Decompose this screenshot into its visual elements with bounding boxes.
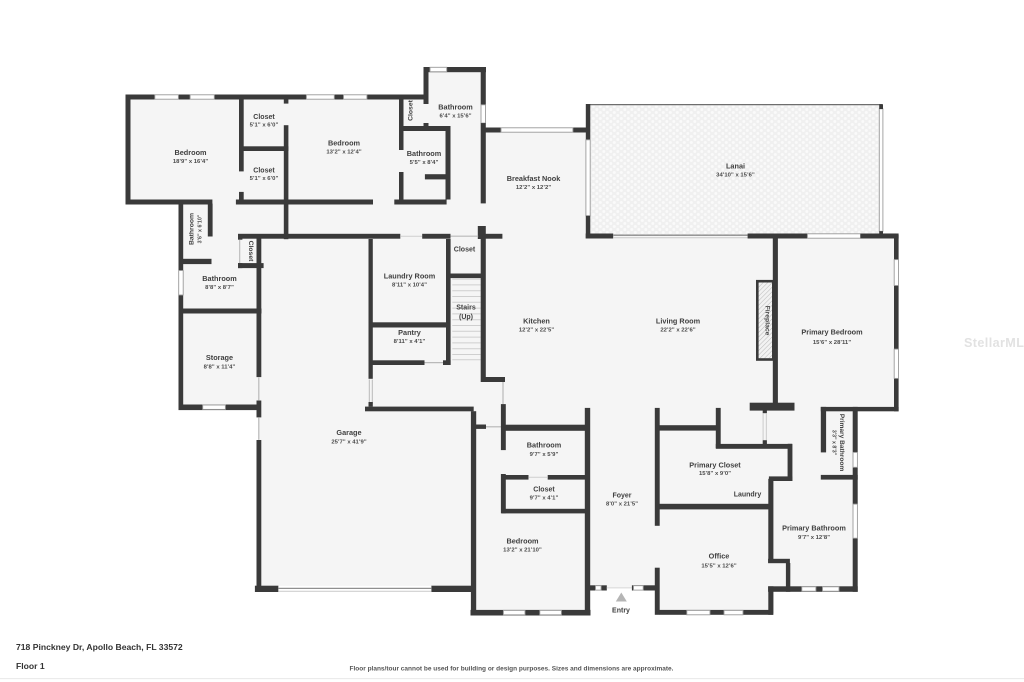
svg-text:5’1” x 6’0”: 5’1” x 6’0” — [250, 176, 279, 182]
svg-text:Bedroom: Bedroom — [174, 148, 207, 157]
svg-text:22’2” x 22’6”: 22’2” x 22’6” — [660, 328, 695, 334]
svg-text:Laundry Room: Laundry Room — [384, 272, 436, 281]
svg-text:Bathroom: Bathroom — [438, 103, 473, 112]
svg-text:Primary Bedroom: Primary Bedroom — [801, 328, 863, 337]
svg-text:13’2” x 21’10”: 13’2” x 21’10” — [503, 548, 542, 554]
svg-text:Bathroom: Bathroom — [527, 441, 562, 450]
svg-text:Closet: Closet — [408, 99, 415, 121]
svg-text:12’2” x 12’2”: 12’2” x 12’2” — [516, 185, 551, 191]
svg-text:15’6” x 28’11”: 15’6” x 28’11” — [813, 340, 851, 346]
svg-text:12’2” x 22’5”: 12’2” x 22’5” — [519, 328, 554, 334]
svg-text:9’7” x 12’8”: 9’7” x 12’8” — [798, 535, 830, 541]
svg-text:Entry: Entry — [612, 608, 630, 615]
svg-text:Breakfast Nook: Breakfast Nook — [507, 174, 561, 183]
svg-text:Fireplace: Fireplace — [764, 306, 771, 336]
svg-text:Primary Bathroom: Primary Bathroom — [838, 414, 845, 472]
svg-text:Bathroom: Bathroom — [202, 274, 237, 283]
svg-text:Kitchen: Kitchen — [523, 317, 550, 326]
svg-text:15’5” x 12’6”: 15’5” x 12’6” — [701, 564, 736, 570]
svg-text:Primary Bathroom: Primary Bathroom — [782, 524, 846, 533]
svg-text:Foyer: Foyer — [612, 493, 631, 500]
svg-text:15’8” x 9’0”: 15’8” x 9’0” — [699, 471, 731, 477]
svg-text:9’7” x 5’9”: 9’7” x 5’9” — [530, 452, 559, 458]
svg-text:3’3” x 8’3”: 3’3” x 8’3” — [831, 430, 837, 456]
svg-text:5’5” x 8’4”: 5’5” x 8’4” — [410, 160, 439, 166]
svg-text:Storage: Storage — [206, 353, 233, 362]
svg-text:8’11” x 4’1”: 8’11” x 4’1” — [394, 339, 426, 345]
svg-text:718 Pinckney Dr, Apollo Beach,: 718 Pinckney Dr, Apollo Beach, FL 33572 — [16, 642, 183, 652]
svg-text:Bedroom: Bedroom — [506, 537, 539, 546]
svg-text:Lanai: Lanai — [726, 162, 745, 171]
svg-text:Closet: Closet — [454, 247, 476, 254]
svg-text:6’4” x 15’6”: 6’4” x 15’6” — [439, 114, 471, 120]
svg-text:Floor plans/tour cannot be use: Floor plans/tour cannot be used for buil… — [350, 666, 674, 673]
svg-text:Floor 1: Floor 1 — [16, 661, 45, 671]
svg-text:Bathroom: Bathroom — [407, 149, 442, 158]
svg-text:Primary Closet: Primary Closet — [689, 461, 741, 470]
svg-text:8’11” x 10’4”: 8’11” x 10’4” — [392, 283, 427, 289]
svg-text:Stairs: Stairs — [456, 305, 476, 312]
svg-text:8’8” x 11’4”: 8’8” x 11’4” — [204, 364, 236, 370]
svg-text:Closet: Closet — [533, 487, 555, 494]
svg-text:Office: Office — [709, 552, 730, 561]
svg-text:Closet: Closet — [253, 114, 275, 121]
svg-text:8’8” x 8’7”: 8’8” x 8’7” — [205, 285, 234, 291]
svg-text:Closet: Closet — [247, 241, 254, 263]
svg-text:13’2” x 12’4”: 13’2” x 12’4” — [326, 150, 361, 156]
svg-text:Bathroom: Bathroom — [189, 213, 196, 245]
svg-text:Living Room: Living Room — [656, 317, 701, 326]
svg-text:18’9” x 16’4”: 18’9” x 16’4” — [173, 159, 208, 165]
svg-text:9’7” x 4’1”: 9’7” x 4’1” — [530, 496, 559, 502]
svg-text:34’10” x 15’6”: 34’10” x 15’6” — [716, 173, 755, 179]
svg-text:3’6” x 6’10”: 3’6” x 6’10” — [198, 214, 204, 243]
svg-text:8’0” x 21’5”: 8’0” x 21’5” — [606, 502, 638, 508]
svg-text:5’1” x 6’0”: 5’1” x 6’0” — [250, 123, 279, 129]
svg-text:StellarMLS: StellarMLS — [964, 336, 1024, 350]
svg-text:Garage: Garage — [336, 428, 361, 437]
svg-text:25’7” x 41’9”: 25’7” x 41’9” — [331, 440, 366, 446]
svg-text:Bedroom: Bedroom — [328, 139, 361, 148]
svg-text:Laundry: Laundry — [734, 492, 762, 499]
svg-text:(Up): (Up) — [459, 314, 473, 321]
svg-text:Pantry: Pantry — [398, 328, 422, 337]
svg-text:Closet: Closet — [253, 168, 275, 175]
